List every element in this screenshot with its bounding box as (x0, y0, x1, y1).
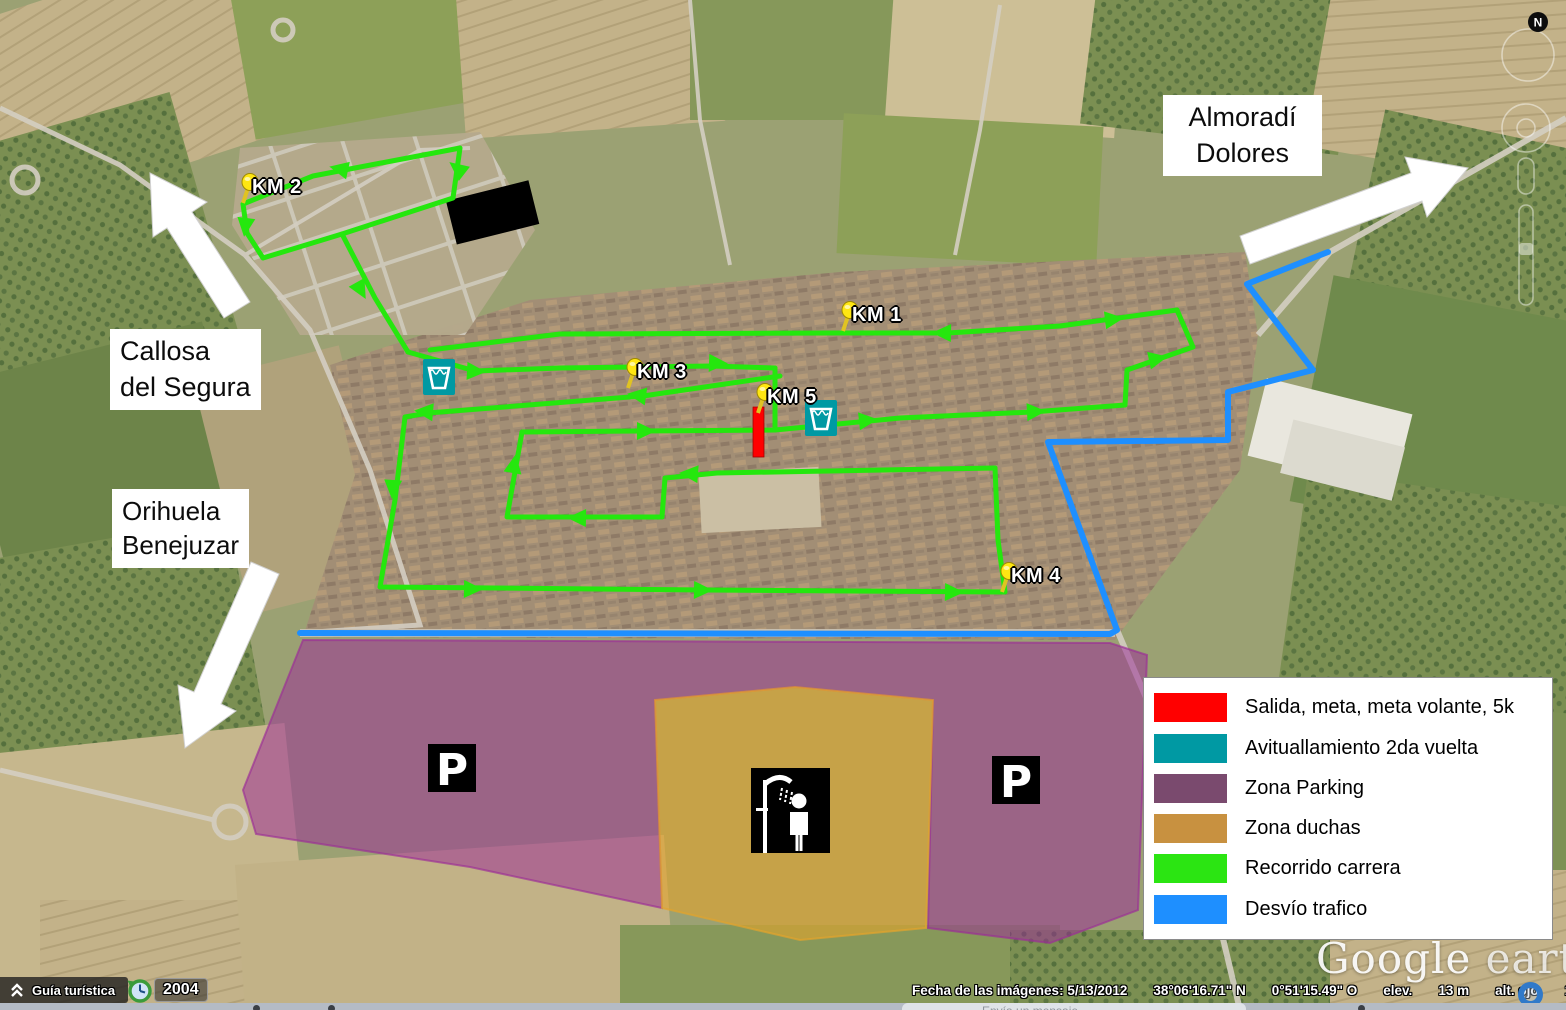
legend-label: Zona duchas (1245, 817, 1361, 840)
km-marker-label: KM 1 (852, 304, 902, 327)
legend-swatch (1154, 814, 1227, 843)
parking-icon[interactable]: P (992, 756, 1040, 808)
dot-icon (253, 1005, 260, 1010)
dot-icon (328, 1005, 335, 1010)
km-marker-label: KM 3 (637, 361, 687, 384)
route-direction-arrow-icon (694, 581, 713, 599)
route-direction-arrow-icon (945, 583, 964, 601)
legend-label: Desvío trafico (1245, 898, 1367, 921)
route-direction-arrow-icon (1104, 309, 1125, 329)
route-direction-arrow-icon (413, 402, 433, 422)
race-route-segment (342, 234, 408, 352)
legend-row: Zona duchas (1144, 814, 1552, 843)
legend-row: Zona Parking (1144, 774, 1552, 803)
status-item: 38°06'16.71" N (1153, 983, 1245, 998)
timeline-year-badge[interactable]: 2004 (154, 978, 208, 1002)
svg-text:P: P (436, 745, 468, 796)
parking-icon[interactable]: P (428, 744, 476, 796)
svg-text:P: P (1000, 757, 1032, 808)
status-bar: Fecha de las imágenes: 5/13/201238°06'16… (912, 983, 1566, 998)
start-finish-bar (753, 407, 764, 457)
map-legend: Salida, meta, meta volante, 5kAvituallam… (1143, 677, 1553, 940)
guia-turistica-button[interactable]: Guía turística (0, 977, 128, 1003)
navigation-controls[interactable]: N (1486, 0, 1566, 320)
route-direction-arrow-icon (678, 464, 698, 483)
collapse-chevrons-icon (8, 981, 26, 999)
status-item: 0°51'15.49" O (1272, 983, 1358, 998)
legend-label: Avituallamiento 2da vuelta (1245, 737, 1478, 760)
legend-swatch (1154, 854, 1227, 883)
background-message-text: Envía un mensaje (982, 1004, 1078, 1010)
status-item: 13 m (1438, 983, 1469, 998)
shower-icon[interactable] (751, 768, 830, 853)
legend-swatch (1154, 693, 1227, 722)
direction-label-orihuela: Orihuela Benejuzar (112, 489, 249, 568)
legend-row: Desvío trafico (1144, 895, 1552, 924)
race-route-segment (507, 432, 995, 517)
direction-label-callosa: Callosa del Segura (110, 329, 261, 410)
legend-label: Zona Parking (1245, 777, 1364, 800)
km-marker-label: KM 5 (767, 386, 817, 409)
background-window-strip: Envía un mensaje (0, 1003, 1566, 1010)
year-label: 2004 (163, 981, 199, 999)
legend-swatch (1154, 895, 1227, 924)
direction-label-almoradi: Almoradí Dolores (1163, 95, 1322, 176)
legend-swatch (1154, 734, 1227, 763)
zoom-slider-handle[interactable] (1519, 243, 1533, 255)
move-joystick[interactable] (1518, 158, 1534, 194)
direction-arrow-to-callosa (150, 173, 250, 318)
legend-label: Salida, meta, meta volante, 5k (1245, 696, 1514, 719)
route-direction-arrow-icon (637, 422, 656, 440)
route-direction-arrow-icon (932, 324, 951, 342)
route-direction-arrow-icon (1027, 402, 1047, 421)
direction-arrow-to-orihuela (178, 562, 279, 748)
route-direction-arrow-icon (709, 354, 729, 373)
route-direction-arrow-icon (383, 479, 402, 499)
route-direction-arrow-icon (327, 158, 349, 180)
route-direction-arrow-icon (467, 362, 487, 381)
google-earth-viewport[interactable]: PP Almoradí Dolores Callosa del Segura O… (0, 0, 1566, 1010)
status-item: elev. (1383, 983, 1412, 998)
km-marker-label: KM 2 (252, 176, 302, 199)
look-ring[interactable] (1502, 104, 1550, 152)
race-route-segment (243, 148, 460, 258)
race-route-segment (380, 376, 1005, 592)
km-marker-label: KM 4 (1011, 565, 1061, 588)
race-route-segment (430, 310, 1177, 350)
legend-row: Recorrido carrera (1144, 854, 1552, 883)
route-direction-arrow-icon (858, 410, 879, 430)
guide-label: Guía turística (32, 983, 115, 998)
status-item: Fecha de las imágenes: 5/13/2012 (912, 983, 1127, 998)
north-label: N (1534, 16, 1543, 30)
route-direction-arrow-icon (235, 217, 255, 238)
aid-station-cup-icon[interactable] (423, 359, 455, 395)
google-earth-watermark: Google earth (1316, 934, 1566, 983)
legend-label: Recorrido carrera (1245, 857, 1401, 880)
route-direction-arrow-icon (464, 580, 483, 598)
route-direction-arrow-icon (504, 453, 525, 475)
compass-ring[interactable] (1502, 29, 1554, 81)
legend-row: Avituallamiento 2da vuelta (1144, 734, 1552, 763)
historical-imagery-clock-icon[interactable] (126, 977, 154, 1005)
legend-row: Salida, meta, meta volante, 5k (1144, 693, 1552, 722)
dot-icon (1358, 1005, 1365, 1010)
route-direction-arrow-icon (567, 509, 586, 527)
background-message-panel: Envía un mensaje (902, 1003, 1246, 1010)
legend-swatch (1154, 774, 1227, 803)
